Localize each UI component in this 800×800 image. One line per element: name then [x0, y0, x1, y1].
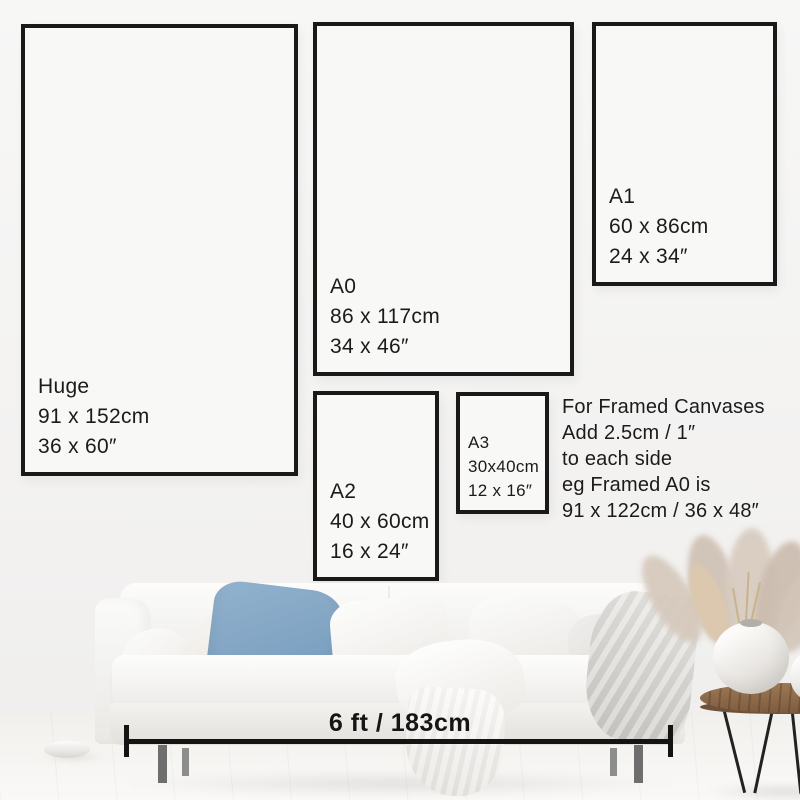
frame-name: A3 — [468, 431, 539, 455]
note-line: For Framed Canvases — [562, 394, 800, 420]
measurement-cap-right — [668, 725, 673, 757]
frame-size-inches: 36 x 60″ — [38, 432, 150, 462]
sofa-shadow — [110, 772, 690, 796]
note-line: to each side — [562, 446, 800, 472]
frame-size-inches: 12 x 16″ — [468, 479, 539, 503]
frame-size-inches: 24 x 34″ — [609, 242, 709, 272]
size-guide-scene: Huge 91 x 152cm 36 x 60″ A0 86 x 117cm 3… — [0, 0, 800, 800]
size-frame-a1: A1 60 x 86cm 24 x 34″ — [592, 22, 777, 286]
size-frame-a3: A3 30x40cm 12 x 16″ — [456, 392, 549, 514]
frame-size-inches: 16 x 24″ — [330, 537, 430, 567]
frame-label-huge: Huge 91 x 152cm 36 x 60″ — [38, 372, 150, 462]
frame-name: A2 — [330, 477, 430, 507]
frame-name: A1 — [609, 182, 709, 212]
sofa-leg — [610, 748, 617, 776]
frame-name: A0 — [330, 272, 440, 302]
sofa-leg — [158, 745, 167, 783]
frame-label-a1: A1 60 x 86cm 24 x 34″ — [609, 182, 709, 272]
frame-size-cm: 40 x 60cm — [330, 507, 430, 537]
note-line: 91 x 122cm / 36 x 48″ — [562, 498, 800, 524]
frame-size-cm: 60 x 86cm — [609, 212, 709, 242]
note-line: Add 2.5cm / 1″ — [562, 420, 800, 446]
size-frame-huge: Huge 91 x 152cm 36 x 60″ — [21, 24, 298, 476]
note-line: eg Framed A0 is — [562, 472, 800, 498]
sofa-leg — [182, 748, 189, 776]
frame-label-a3: A3 30x40cm 12 x 16″ — [468, 431, 539, 503]
frame-label-a2: A2 40 x 60cm 16 x 24″ — [330, 477, 430, 567]
frame-size-cm: 86 x 117cm — [330, 302, 440, 332]
decor-bowl — [44, 741, 90, 758]
frame-size-cm: 91 x 152cm — [38, 402, 150, 432]
frame-size-inches: 34 x 46″ — [330, 332, 440, 362]
vase-mouth — [740, 619, 762, 627]
vase-large — [713, 622, 789, 694]
measurement-line — [126, 739, 673, 744]
size-frame-a2: A2 40 x 60cm 16 x 24″ — [313, 391, 439, 581]
measurement-label: 6 ft / 183cm — [285, 709, 515, 738]
framed-canvas-note: For Framed Canvases Add 2.5cm / 1″ to ea… — [562, 394, 800, 524]
size-frame-a0: A0 86 x 117cm 34 x 46″ — [313, 22, 574, 376]
frame-label-a0: A0 86 x 117cm 34 x 46″ — [330, 272, 440, 362]
frame-name: Huge — [38, 372, 150, 402]
frame-size-cm: 30x40cm — [468, 455, 539, 479]
sofa-leg — [634, 745, 643, 783]
